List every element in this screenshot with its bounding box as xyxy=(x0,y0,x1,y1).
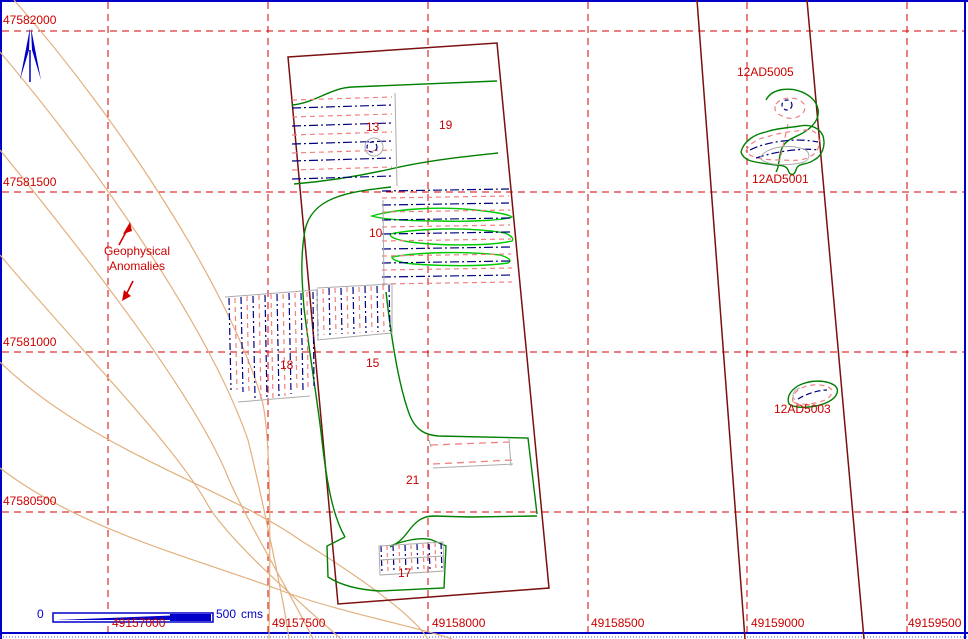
area-label-15: 15 xyxy=(366,357,379,370)
area-label-18: 18 xyxy=(280,359,293,372)
geophysical-anomalies-annotation: Geophysical Anomalies xyxy=(95,244,179,274)
x-axis-label: 49158000 xyxy=(432,617,485,630)
y-axis-label: 47581000 xyxy=(3,336,56,349)
site-12AD5001-shape xyxy=(741,125,824,174)
pink-rows-area-21 xyxy=(431,442,513,464)
hatch-area-18 xyxy=(229,292,314,400)
hatch-area-15-strip xyxy=(317,285,390,336)
coordinate-grid xyxy=(2,2,964,632)
area-label-17: 17 xyxy=(398,567,411,580)
y-axis-label: 47581500 xyxy=(3,176,56,189)
x-axis-label: 49159500 xyxy=(908,617,961,630)
x-axis-label: 49159000 xyxy=(751,617,804,630)
scale-bar-zero-label: 0 xyxy=(37,608,44,621)
topo-contour-lines xyxy=(0,0,452,639)
gray-outlines xyxy=(225,93,513,575)
scale-bar-unit-label: cms xyxy=(241,608,263,621)
north-arrow-icon xyxy=(20,28,41,82)
x-axis-label: 49157500 xyxy=(272,617,325,630)
area-label-19: 19 xyxy=(439,119,452,132)
site-12AD5005-shape xyxy=(766,89,818,172)
bright-green-anomaly-outlines xyxy=(372,208,513,265)
hatch-area-10 xyxy=(382,189,512,284)
site-label-12AD5005: 12AD5005 xyxy=(737,66,794,79)
y-axis-label: 47580500 xyxy=(3,495,56,508)
site-label-12AD5001: 12AD5001 xyxy=(752,173,809,186)
map-canvas[interactable]: 47582000 47581500 47581000 47580500 4915… xyxy=(0,0,968,639)
site-label-12AD5003: 12AD5003 xyxy=(774,403,831,416)
green-contours xyxy=(292,81,537,591)
area-label-21: 21 xyxy=(406,474,419,487)
map-artwork xyxy=(0,0,968,639)
area-label-13: 13 xyxy=(366,121,379,134)
survey-corridor-lines xyxy=(697,0,864,639)
area-label-10: 10 xyxy=(369,227,382,240)
x-axis-label: 49158500 xyxy=(591,617,644,630)
y-axis-label: 47582000 xyxy=(3,14,56,27)
scale-bar-max-label: 500 xyxy=(216,608,236,621)
x-axis-label: 49157000 xyxy=(112,617,165,630)
